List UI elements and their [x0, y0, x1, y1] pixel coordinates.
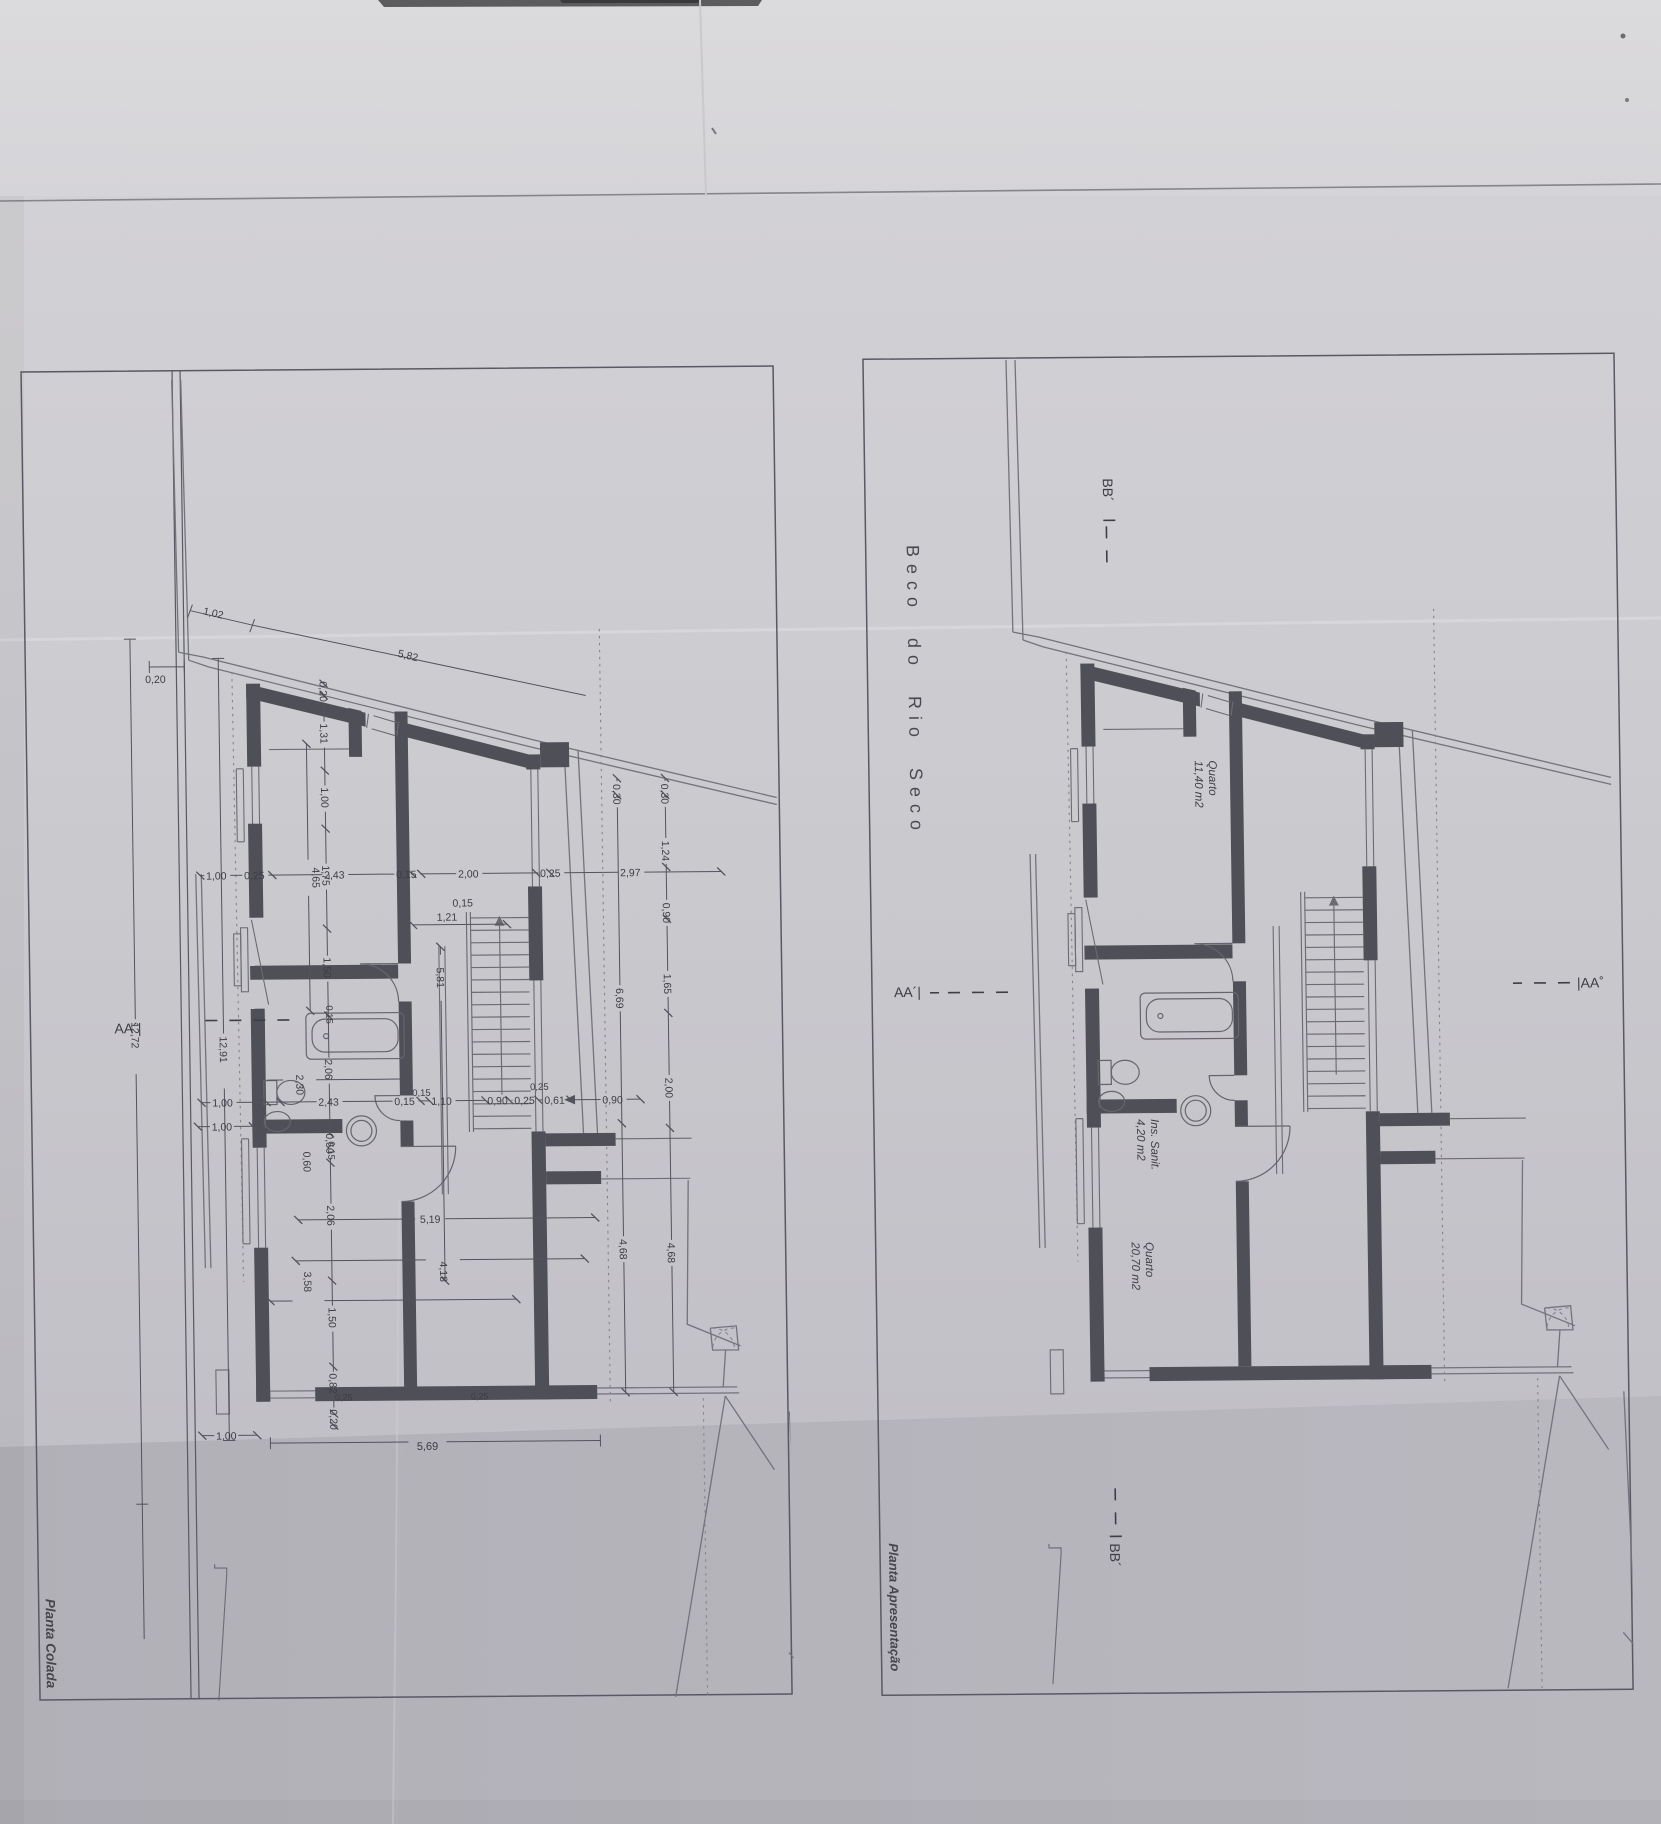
svg-text:2,00: 2,00	[458, 868, 479, 880]
svg-text:0,60: 0,60	[300, 1152, 312, 1173]
svg-text:2,30: 2,30	[293, 1075, 305, 1096]
svg-text:0,90: 0,90	[487, 1095, 508, 1107]
svg-text:0,15: 0,15	[452, 897, 473, 909]
svg-text:0,15: 0,15	[325, 1141, 336, 1160]
svg-text:Quarto: Quarto	[1143, 1242, 1156, 1278]
svg-text:5,69: 5,69	[417, 1441, 439, 1453]
svg-text:Planta Apresentação: Planta Apresentação	[886, 1543, 903, 1671]
svg-text:4,68: 4,68	[665, 1243, 677, 1264]
svg-text:2,06: 2,06	[324, 1205, 336, 1226]
svg-text:0,25: 0,25	[540, 868, 561, 880]
svg-text:2,06: 2,06	[322, 1059, 334, 1080]
svg-text:0,90: 0,90	[660, 903, 672, 924]
svg-text:1,50: 1,50	[320, 957, 332, 978]
svg-text:1,21: 1,21	[437, 912, 458, 924]
svg-text:1,00: 1,00	[318, 787, 330, 808]
svg-text:Quarto: Quarto	[1206, 760, 1219, 796]
svg-text:0,25: 0,25	[244, 870, 265, 882]
svg-text:0,25: 0,25	[471, 1391, 489, 1401]
svg-text:0,20: 0,20	[317, 681, 329, 702]
svg-text:4,20 m2: 4,20 m2	[1134, 1119, 1147, 1161]
svg-text:1,00: 1,00	[216, 1430, 237, 1442]
svg-text:0,25: 0,25	[530, 1082, 549, 1093]
svg-text:1,65: 1,65	[661, 974, 673, 995]
svg-text:1,00: 1,00	[206, 870, 227, 882]
svg-text:4,18: 4,18	[437, 1261, 449, 1282]
svg-text:Planta Colada: Planta Colada	[43, 1599, 59, 1689]
svg-text:12,72: 12,72	[128, 1022, 140, 1049]
svg-text:0,82: 0,82	[326, 1373, 338, 1394]
svg-text:5,81: 5,81	[434, 967, 446, 988]
svg-text:0,30: 0,30	[610, 784, 622, 805]
svg-text:Ins. Sanit.: Ins. Sanit.	[1148, 1119, 1161, 1170]
svg-text:6,69: 6,69	[613, 988, 625, 1009]
svg-text:0,25: 0,25	[514, 1095, 535, 1107]
svg-text:12,91: 12,91	[217, 1036, 229, 1063]
svg-text:Beco do Rio Seco: Beco do Rio Seco	[903, 545, 927, 837]
svg-text:|AA˚: |AA˚	[1577, 974, 1604, 990]
svg-text:BB´: BB´	[1100, 478, 1116, 501]
svg-text:4,68: 4,68	[617, 1239, 629, 1260]
svg-text:BB´: BB´	[1107, 1543, 1123, 1566]
svg-text:1,00: 1,00	[212, 1097, 233, 1109]
svg-text:0,20: 0,20	[327, 1409, 339, 1430]
svg-text:20,70 m2: 20,70 m2	[1129, 1241, 1142, 1291]
svg-text:0,61: 0,61	[544, 1095, 565, 1107]
svg-text:11,40 m2: 11,40 m2	[1192, 761, 1205, 809]
svg-text:2,43: 2,43	[324, 869, 345, 881]
svg-text:3,58: 3,58	[301, 1272, 313, 1293]
svg-text:1,50: 1,50	[325, 1307, 337, 1328]
svg-text:0,15: 0,15	[412, 1088, 431, 1099]
svg-text:0,15: 0,15	[396, 869, 417, 881]
svg-text:1,10: 1,10	[431, 1096, 452, 1108]
svg-text:0,15: 0,15	[323, 1005, 334, 1024]
svg-text:0,20: 0,20	[145, 674, 166, 686]
svg-text:0,90: 0,90	[602, 1094, 623, 1106]
svg-text:1,00: 1,00	[212, 1121, 233, 1133]
svg-text:1,31: 1,31	[317, 723, 329, 744]
svg-text:AA´|: AA´|	[894, 984, 921, 1000]
svg-text:5,19: 5,19	[420, 1214, 441, 1226]
svg-text:2,43: 2,43	[318, 1097, 339, 1109]
svg-text:2,97: 2,97	[620, 867, 641, 879]
svg-text:2,00: 2,00	[662, 1078, 674, 1099]
svg-text:0,30: 0,30	[658, 784, 670, 805]
svg-text:0,25: 0,25	[335, 1392, 353, 1402]
svg-text:4,65: 4,65	[309, 867, 321, 888]
svg-text:1,24: 1,24	[659, 841, 671, 862]
